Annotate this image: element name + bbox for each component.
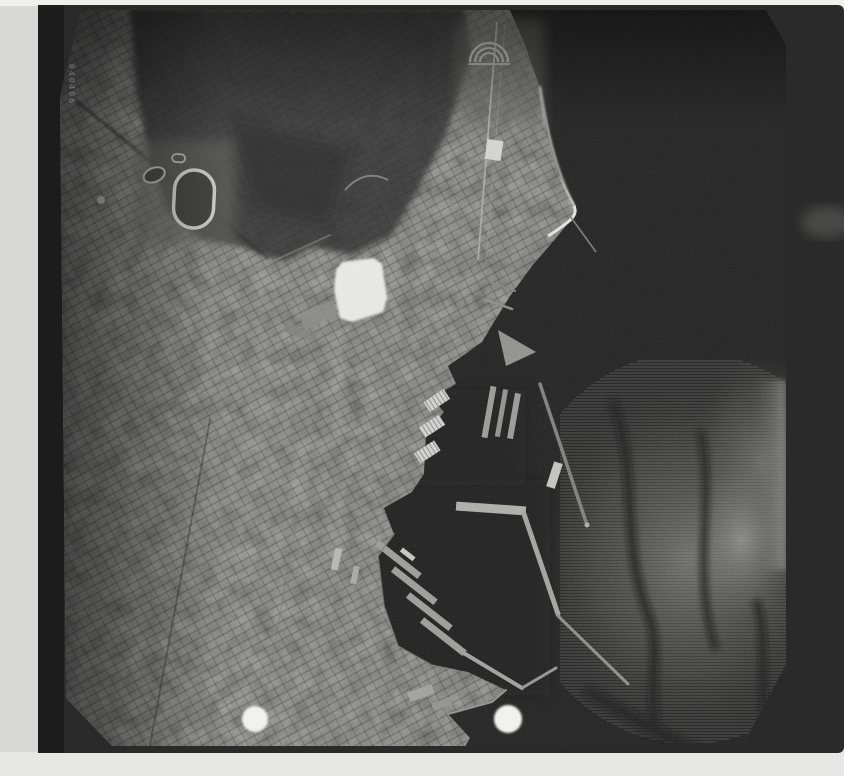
bottom-margin-striations bbox=[0, 752, 844, 776]
top-edge-shading bbox=[55, 5, 791, 125]
photo-emulsion bbox=[55, 5, 844, 753]
film-edge-code: 040406 bbox=[67, 64, 76, 105]
fiducial-dot-left bbox=[242, 706, 268, 732]
aerial-photo-scan: 040406 bbox=[0, 0, 844, 776]
film-left-rebate bbox=[38, 5, 64, 753]
scanned-photo-page: 040406 bbox=[0, 0, 844, 776]
fiducial-dot-right bbox=[494, 705, 522, 733]
